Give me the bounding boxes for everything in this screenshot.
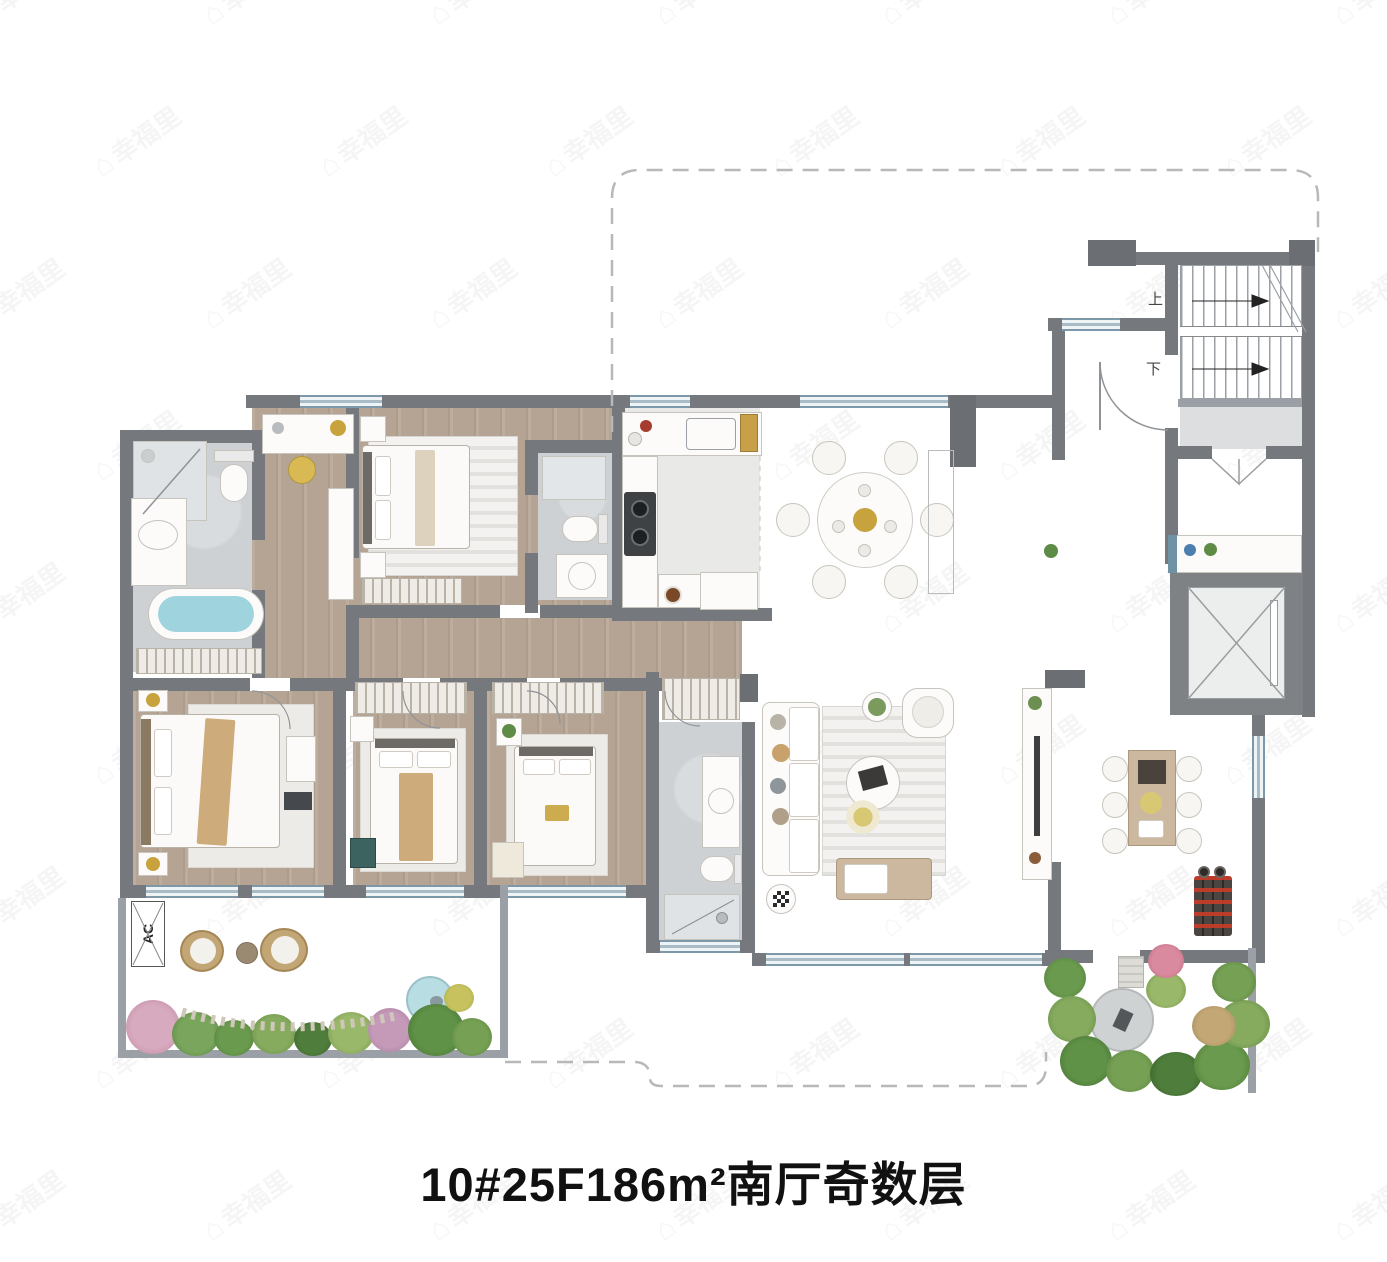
house-icon: ⌂	[0, 0, 4, 32]
garden-bush-tan	[1192, 1006, 1236, 1046]
tv-screen	[1034, 736, 1040, 836]
bedroom4-pillow-1	[375, 456, 391, 496]
bedroom3-headboard	[519, 747, 593, 756]
bedroom2-nightstand-bottom	[350, 838, 376, 868]
bedroom4-bed	[362, 445, 470, 549]
master-bed	[140, 714, 280, 848]
stove-burner-2	[631, 528, 649, 546]
tv-console-deco	[1029, 852, 1041, 864]
house-icon: ⌂	[538, 1058, 572, 1095]
dining-chair-5	[812, 565, 846, 599]
watermark-item: ⌂幸福里	[1324, 553, 1387, 641]
watermark-item: ⌂幸福里	[762, 1009, 865, 1097]
master-ottoman	[286, 736, 316, 782]
family-stool-3	[1102, 828, 1128, 854]
watermark-item: ⌂幸福里	[872, 0, 975, 32]
watermark-item: ⌂幸福里	[84, 97, 187, 185]
kitchen-bowl-red	[640, 420, 652, 432]
bedroom4-wardrobe	[362, 578, 462, 604]
house-icon: ⌂	[312, 1058, 346, 1095]
master-lamp-top	[146, 693, 160, 707]
garden-plant-1	[1044, 958, 1086, 998]
stair-mid-landing	[1180, 326, 1302, 337]
kitchen-food-plate	[664, 586, 682, 604]
balcony-edge-right	[500, 885, 508, 1058]
patio-chair-1-cushion	[190, 938, 216, 964]
house-icon: ⌂	[0, 298, 4, 335]
house-icon: ⌂	[1326, 906, 1360, 943]
house-icon: ⌂	[648, 298, 682, 335]
family-table-book	[1138, 820, 1164, 838]
dining-plate-4	[832, 520, 845, 533]
bedroom2-pillow-1	[379, 751, 413, 768]
sofa-seat-line-1	[789, 707, 819, 761]
wall-lobby-a	[1178, 446, 1212, 459]
bedroom3-pillow-2	[559, 759, 591, 775]
garden-plant-3	[1060, 1036, 1112, 1086]
kitchen-oven	[740, 414, 758, 452]
wall-b2-b3	[474, 678, 487, 898]
wall-bath-south-right	[742, 722, 755, 953]
bath3-toilet-bowl	[700, 856, 734, 882]
corridor-plant-icon	[1044, 544, 1058, 558]
gold-plate-icon	[330, 420, 346, 436]
ensuite-toilet-tank	[598, 514, 608, 544]
family-stool-5	[1176, 792, 1202, 818]
dressing-cabinet	[328, 488, 354, 600]
bedroom3-plant-icon	[502, 724, 516, 738]
bath3-sink	[708, 788, 734, 814]
house-icon: ⌂	[648, 0, 682, 32]
bedroom2-bed	[370, 738, 458, 864]
watermark-item: ⌂幸福里	[194, 249, 297, 337]
bathtub-water	[158, 596, 254, 632]
pillar-stair-topleft	[1088, 240, 1136, 266]
sofa-pillow-2	[772, 744, 790, 762]
house-icon: ⌂	[86, 1058, 120, 1095]
patio-side-table	[236, 942, 258, 964]
bedroom3-blanket-gold	[545, 805, 569, 821]
dining-tall-cabinet	[928, 450, 954, 594]
house-icon: ⌂	[990, 146, 1024, 183]
window-living-south-2	[910, 953, 1042, 966]
balcony-edge-left	[118, 898, 126, 1058]
master-headboard	[141, 719, 151, 845]
house-icon: ⌂	[86, 450, 120, 487]
garden-flowers-pink	[1148, 944, 1184, 978]
bedroom3-pillow-1	[523, 759, 555, 775]
makeup-mirror-icon	[272, 422, 284, 434]
ensuite-toilet-bowl	[562, 516, 598, 542]
balcony-plant-pink-1	[126, 1000, 180, 1054]
house-icon: ⌂	[1326, 602, 1360, 639]
bedroom4-pillow-2	[375, 500, 391, 540]
balcony-plant-2	[214, 1020, 254, 1056]
watermark-item: ⌂幸福里	[0, 857, 72, 945]
stairs-up-label: 上	[1148, 288, 1163, 309]
stove-burner-1	[631, 500, 649, 518]
bath3-toilet-tank	[734, 854, 742, 884]
wall-lobby-b	[1266, 446, 1302, 459]
garden-plant-2	[1048, 996, 1096, 1042]
watermark-item: ⌂幸福里	[1098, 0, 1201, 32]
bedroom3-bed	[514, 746, 596, 866]
watermark-item: ⌂幸福里	[194, 0, 297, 32]
bedroom2-wardrobe	[355, 682, 467, 714]
bedroom2-nightstand-top	[350, 716, 374, 742]
dining-chair-6	[884, 565, 918, 599]
watermark-item: ⌂幸福里	[420, 249, 523, 337]
grill-burner-1	[1198, 866, 1210, 878]
stair-landing-slab	[1180, 403, 1302, 449]
family-stool-6	[1176, 828, 1202, 854]
dining-plate-2	[884, 520, 897, 533]
master-pillow-1	[154, 729, 172, 777]
grill-burner-2	[1214, 866, 1226, 878]
pillar-living-top-left	[740, 674, 758, 702]
balcony-plant-yellow	[444, 984, 474, 1012]
wall-ensuite-top	[525, 440, 612, 453]
house-icon: ⌂	[86, 754, 120, 791]
bedroom4-nightstand-top	[360, 416, 386, 442]
wall-family-right	[1252, 690, 1265, 963]
house-icon: ⌂	[648, 1210, 682, 1247]
wall-master-b2	[333, 678, 346, 898]
ensuite-sink	[568, 562, 596, 590]
hallway-floor	[346, 618, 742, 678]
toilet-master-tank	[214, 450, 254, 462]
watermark-item: ⌂幸福里	[872, 249, 975, 337]
watermark-item: ⌂幸福里	[1214, 97, 1317, 185]
watermark-item: ⌂幸福里	[536, 97, 639, 185]
watermark-item: ⌂幸福里	[646, 249, 749, 337]
foyer-plant-icon	[1204, 543, 1217, 556]
sofa-seat-line-3	[789, 819, 819, 873]
house-icon: ⌂	[1216, 146, 1250, 183]
garden-steps	[1118, 956, 1144, 988]
tv-console-plant	[1028, 696, 1042, 710]
family-stool-1	[1102, 756, 1128, 782]
watermark-item: ⌂幸福里	[988, 97, 1091, 185]
bedroom3-wardrobe	[492, 682, 604, 714]
watermark-item: ⌂幸福里	[310, 97, 413, 185]
ensuite-shower	[542, 456, 606, 500]
foyer-console-window	[1168, 535, 1177, 573]
dining-chair-4	[776, 503, 810, 537]
house-icon: ⌂	[422, 1210, 456, 1247]
balcony-plant-4	[294, 1022, 332, 1056]
wall-ensuite-left-lower	[525, 553, 538, 613]
ac-unit-label: AC	[140, 924, 156, 944]
wall-b3-bath	[646, 672, 659, 953]
house-icon: ⌂	[874, 1210, 908, 1247]
window-bath3-south	[660, 940, 740, 953]
master-lamp-bottom	[146, 857, 160, 871]
house-icon: ⌂	[196, 1210, 230, 1247]
balcony-plant-5	[328, 1012, 374, 1054]
sofa-pillow-1	[770, 714, 786, 730]
wall-bedroom4-left-lower	[346, 608, 359, 678]
wall-lobby-divider	[1178, 399, 1302, 407]
window-dining-north	[800, 395, 948, 408]
pillar-living-top-right	[1045, 670, 1085, 688]
kitchen-sink	[686, 418, 736, 450]
elevator-door-slot	[1270, 600, 1278, 686]
window-master-south-1	[146, 885, 238, 898]
bedroom4-headboard	[363, 452, 372, 544]
watermark-item: ⌂幸福里	[0, 553, 72, 641]
kitchen-fridge	[700, 572, 758, 610]
bedroom2-blanket	[399, 773, 433, 861]
house-icon: ⌂	[422, 0, 456, 32]
balcony-plant-1	[172, 1012, 220, 1056]
window-bedroom3-south	[508, 885, 626, 898]
sofa-seat-line-2	[789, 763, 819, 817]
daybed-cushion	[844, 864, 888, 894]
window-bedroom2-south	[366, 885, 464, 898]
house-icon: ⌂	[1100, 0, 1134, 32]
shower-head-icon	[141, 449, 155, 463]
house-icon: ⌂	[1326, 0, 1360, 32]
watermark-item: ⌂幸福里	[762, 97, 865, 185]
bbq-grill	[1194, 876, 1232, 936]
house-icon: ⌂	[874, 0, 908, 32]
window-bedroom4-north	[300, 395, 382, 408]
walkin-closet	[662, 678, 740, 720]
house-icon: ⌂	[1326, 298, 1360, 335]
towel-shelf-master	[136, 648, 262, 674]
toilet-master-bowl	[220, 464, 248, 502]
sofa-pillow-3	[770, 778, 786, 794]
window-corridor-north	[1062, 318, 1120, 331]
house-icon: ⌂	[422, 298, 456, 335]
house-icon: ⌂	[196, 0, 230, 32]
entry-corridor-floor	[1052, 330, 1165, 690]
patio-chair-2-cushion	[271, 936, 299, 964]
kitchen-plate	[628, 432, 642, 446]
side-table-plant-leaves	[868, 698, 886, 716]
family-table-tray	[1138, 760, 1166, 784]
house-icon: ⌂	[0, 906, 4, 943]
balcony-plant-3	[252, 1014, 296, 1054]
master-media-unit	[284, 792, 312, 810]
bedroom4-nightstand-bottom	[360, 552, 386, 578]
house-icon: ⌂	[196, 298, 230, 335]
plan-title: 10#25F186m²南厅奇数层	[0, 1146, 1387, 1215]
dining-plate-1	[858, 484, 871, 497]
window-family-east	[1252, 736, 1265, 798]
house-icon: ⌂	[990, 1058, 1024, 1095]
dressing-stool	[288, 456, 316, 484]
watermark-item: ⌂幸福里	[420, 0, 523, 32]
watermark-item: ⌂幸福里	[1324, 249, 1387, 337]
house-icon: ⌂	[538, 146, 572, 183]
house-icon: ⌂	[86, 146, 120, 183]
watermark-item: ⌂幸福里	[0, 249, 72, 337]
watermark-item: ⌂幸福里	[536, 1009, 639, 1097]
dining-chair-2	[884, 441, 918, 475]
garden-plant-4	[1106, 1050, 1154, 1092]
bath3-shower	[664, 894, 740, 940]
window-living-south-1	[766, 953, 904, 966]
floor-plan-page: { "title": { "text": "10#25F186m²南厅奇数层" …	[0, 0, 1387, 1262]
house-icon: ⌂	[312, 146, 346, 183]
watermark-item: ⌂幸福里	[1324, 0, 1387, 32]
bedroom2-headboard	[375, 739, 455, 748]
ac-unit: AC	[131, 901, 165, 967]
house-icon: ⌂	[1100, 1210, 1134, 1247]
house-icon: ⌂	[764, 146, 798, 183]
foyer-vase-icon	[1184, 544, 1196, 556]
master-blanket	[197, 718, 236, 846]
bedroom2-pillow-2	[417, 751, 451, 768]
family-stool-2	[1102, 792, 1128, 818]
bedroom4-blanket	[415, 450, 435, 546]
bedroom3-dresser	[492, 842, 524, 878]
family-table-flower	[1140, 792, 1162, 814]
flower-deco-gold	[846, 800, 880, 834]
house-icon: ⌂	[0, 1210, 4, 1247]
sink-master	[138, 520, 178, 550]
armchair-cushion	[912, 696, 944, 728]
window-kitchen-north	[630, 395, 690, 408]
wall-corridor-left	[1052, 318, 1065, 460]
qr-code-icon	[773, 891, 789, 907]
wall-stair-right	[1302, 252, 1315, 717]
balcony-plant-7	[452, 1018, 492, 1056]
garden-plant-8	[1212, 962, 1256, 1002]
family-stool-4	[1176, 756, 1202, 782]
house-icon: ⌂	[0, 602, 4, 639]
house-icon: ⌂	[874, 298, 908, 335]
sofa-pillow-4	[772, 808, 789, 825]
house-icon: ⌂	[764, 1058, 798, 1095]
master-pillow-2	[154, 787, 172, 835]
wall-bedroom4-bottom-a	[346, 605, 500, 618]
wall-bedroom4-bottom-b	[540, 605, 612, 618]
watermark-item: ⌂幸福里	[646, 0, 749, 32]
pillar-stair-topright	[1289, 240, 1315, 266]
stairs-down-label: 下	[1146, 358, 1161, 379]
wall-stair-left-upper	[1165, 252, 1178, 355]
bath3-drain-icon	[716, 912, 728, 924]
balcony-plant-pink-2	[368, 1008, 412, 1052]
dining-centerpiece	[853, 508, 877, 532]
watermark-item: ⌂幸福里	[1324, 857, 1387, 945]
window-master-south-2	[252, 885, 324, 898]
watermark-item: ⌂幸福里	[0, 0, 72, 32]
dining-plate-3	[858, 544, 871, 557]
dining-chair-3	[812, 441, 846, 475]
house-icon: ⌂	[1326, 1210, 1360, 1247]
